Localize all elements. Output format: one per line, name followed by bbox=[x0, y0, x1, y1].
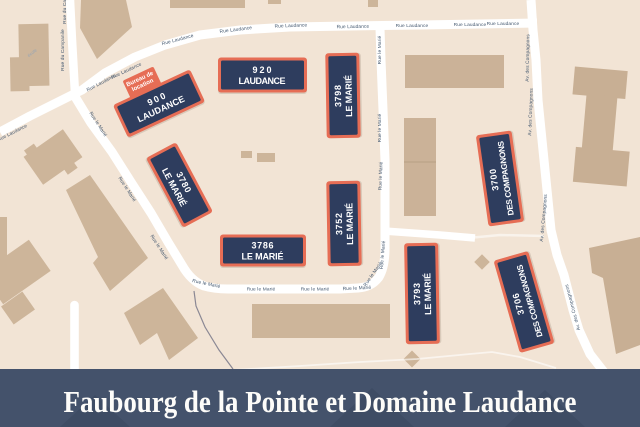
svg-text:Faubourg de la Pointe et Domai: Faubourg de la Pointe et Domaine Laudanc… bbox=[64, 384, 577, 419]
svg-text:Rue le Marié: Rue le Marié bbox=[378, 161, 385, 190]
svg-text:Rue Laudance: Rue Laudance bbox=[487, 21, 520, 27]
svg-text:3793: 3793 bbox=[412, 282, 422, 305]
svg-text:3786: 3786 bbox=[252, 241, 275, 251]
svg-text:Av. des Compagnons: Av. des Compagnons bbox=[525, 34, 532, 82]
svg-text:Rue du Campanile: Rue du Campanile bbox=[60, 29, 66, 71]
svg-text:LE MARIÉ: LE MARIÉ bbox=[344, 202, 355, 245]
svg-text:Rue Laudance: Rue Laudance bbox=[337, 24, 370, 31]
svg-text:LE MARIÉ: LE MARIÉ bbox=[242, 251, 285, 261]
svg-text:Rue Laudance: Rue Laudance bbox=[454, 22, 487, 28]
svg-text:Rue du Campanile: Rue du Campanile bbox=[62, 0, 68, 24]
svg-text:920: 920 bbox=[253, 65, 273, 75]
svg-text:Rue le Marié: Rue le Marié bbox=[247, 287, 276, 293]
svg-text:3798: 3798 bbox=[333, 84, 343, 107]
svg-text:LE MARIÉ: LE MARIÉ bbox=[422, 272, 433, 315]
svg-text:3752: 3752 bbox=[334, 212, 344, 235]
svg-text:Rue le Marié: Rue le Marié bbox=[301, 287, 330, 293]
svg-text:Rue le Marié: Rue le Marié bbox=[377, 113, 383, 142]
svg-text:LAUDANCE: LAUDANCE bbox=[239, 76, 287, 86]
svg-text:Rue Laudance: Rue Laudance bbox=[396, 23, 429, 29]
svg-text:Rue Laudance: Rue Laudance bbox=[275, 22, 308, 29]
svg-text:LE MARIÉ: LE MARIÉ bbox=[343, 74, 354, 117]
svg-text:Rue le Marié: Rue le Marié bbox=[377, 35, 383, 64]
